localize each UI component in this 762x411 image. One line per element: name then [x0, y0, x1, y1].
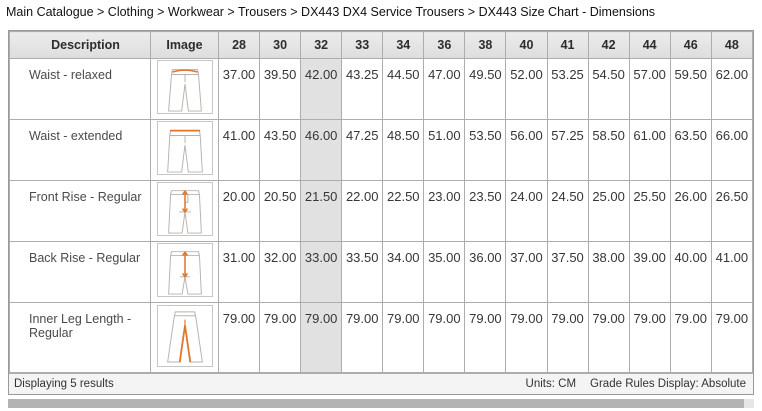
measurement-value: 66.00	[711, 120, 752, 181]
measurement-value: 36.00	[465, 242, 506, 303]
table-row: Waist - relaxed 37.0039.5042.0043.2544.5…	[10, 59, 753, 120]
measurement-value: 23.50	[465, 181, 506, 242]
row-image-cell	[151, 59, 219, 120]
measurement-value: 57.25	[547, 120, 588, 181]
row-description: Waist - extended	[10, 120, 151, 181]
measurement-value: 79.00	[383, 303, 424, 373]
measurement-value: 35.00	[424, 242, 465, 303]
row-image-cell	[151, 181, 219, 242]
measurement-value: 79.00	[424, 303, 465, 373]
size-column-header-32[interactable]: 32	[301, 32, 342, 59]
table-row: Front Rise - Regular 20.0020.5021.5022.0…	[10, 181, 753, 242]
measurement-value: 79.00	[219, 303, 260, 373]
measurement-value: 48.50	[383, 120, 424, 181]
size-column-header-33[interactable]: 33	[342, 32, 383, 59]
row-image-cell	[151, 120, 219, 181]
measurement-value: 46.00	[301, 120, 342, 181]
measurement-value: 42.00	[301, 59, 342, 120]
measurement-value: 21.50	[301, 181, 342, 242]
measurement-value: 32.00	[260, 242, 301, 303]
size-column-header-38[interactable]: 38	[465, 32, 506, 59]
measurement-value: 24.50	[547, 181, 588, 242]
measurement-value: 47.00	[424, 59, 465, 120]
table-footer: Displaying 5 results Units: CM Grade Rul…	[9, 373, 753, 394]
measurement-value: 79.00	[670, 303, 711, 373]
measurement-value: 53.50	[465, 120, 506, 181]
size-column-header-46[interactable]: 46	[670, 32, 711, 59]
size-column-header-41[interactable]: 41	[547, 32, 588, 59]
measurement-value: 20.00	[219, 181, 260, 242]
row-image-cell	[151, 242, 219, 303]
table-row: Waist - extended 41.0043.5046.0047.2548.…	[10, 120, 753, 181]
measurement-value: 26.50	[711, 181, 752, 242]
measurement-value: 44.50	[383, 59, 424, 120]
measurement-value: 79.00	[506, 303, 547, 373]
measurement-value: 37.00	[219, 59, 260, 120]
size-column-header-28[interactable]: 28	[219, 32, 260, 59]
trousers-waist-extended-diagram	[157, 121, 213, 175]
table-row: Back Rise - Regular 31.0032.0033.0033.50…	[10, 242, 753, 303]
measurement-value: 39.00	[629, 242, 670, 303]
measurement-value: 52.00	[506, 59, 547, 120]
measurement-value: 25.00	[588, 181, 629, 242]
measurement-value: 24.00	[506, 181, 547, 242]
trousers-waist-relaxed-diagram	[157, 60, 213, 114]
table-row: Inner Leg Length - Regular 79.0079.0079.…	[10, 303, 753, 373]
row-image-cell	[151, 303, 219, 373]
measurement-value: 39.50	[260, 59, 301, 120]
measurement-value: 22.50	[383, 181, 424, 242]
measurement-value: 34.00	[383, 242, 424, 303]
units-label: Units: CM	[526, 378, 576, 390]
grade-rules-display-label: Grade Rules Display: Absolute	[590, 378, 746, 390]
size-column-header-48[interactable]: 48	[711, 32, 752, 59]
measurement-value: 79.00	[260, 303, 301, 373]
row-description: Front Rise - Regular	[10, 181, 151, 242]
horizontal-scrollbar[interactable]	[8, 399, 754, 408]
measurement-value: 79.00	[547, 303, 588, 373]
measurement-value: 43.50	[260, 120, 301, 181]
measurement-value: 58.50	[588, 120, 629, 181]
size-column-header-40[interactable]: 40	[506, 32, 547, 59]
trousers-back-rise-diagram	[157, 243, 213, 297]
measurement-value: 49.50	[465, 59, 506, 120]
breadcrumb[interactable]: Main Catalogue > Clothing > Workwear > T…	[0, 0, 762, 19]
measurement-value: 37.00	[506, 242, 547, 303]
horizontal-scrollbar-thumb[interactable]	[8, 399, 744, 408]
measurement-value: 22.00	[342, 181, 383, 242]
size-chart-table: Description Image 2830323334363840414244…	[8, 30, 754, 395]
measurement-value: 20.50	[260, 181, 301, 242]
measurement-value: 40.00	[670, 242, 711, 303]
size-column-header-42[interactable]: 42	[588, 32, 629, 59]
size-column-header-34[interactable]: 34	[383, 32, 424, 59]
size-column-header-36[interactable]: 36	[424, 32, 465, 59]
measurement-value: 53.25	[547, 59, 588, 120]
measurement-value: 79.00	[629, 303, 670, 373]
measurement-value: 79.00	[711, 303, 752, 373]
measurement-value: 51.00	[424, 120, 465, 181]
row-description: Back Rise - Regular	[10, 242, 151, 303]
measurement-value: 26.00	[670, 181, 711, 242]
measurement-value: 61.00	[629, 120, 670, 181]
results-count-text: Displaying 5 results	[14, 378, 114, 390]
row-description: Waist - relaxed	[10, 59, 151, 120]
measurement-value: 79.00	[465, 303, 506, 373]
image-column-header: Image	[151, 32, 219, 59]
measurement-value: 31.00	[219, 242, 260, 303]
measurement-value: 38.00	[588, 242, 629, 303]
table-header-row: Description Image 2830323334363840414244…	[10, 32, 753, 59]
measurement-value: 33.00	[301, 242, 342, 303]
measurement-value: 79.00	[588, 303, 629, 373]
measurement-value: 79.00	[342, 303, 383, 373]
measurement-value: 79.00	[301, 303, 342, 373]
measurement-value: 63.50	[670, 120, 711, 181]
measurement-value: 23.00	[424, 181, 465, 242]
measurement-value: 56.00	[506, 120, 547, 181]
trousers-front-rise-diagram	[157, 182, 213, 236]
measurement-value: 43.25	[342, 59, 383, 120]
measurement-value: 25.50	[629, 181, 670, 242]
measurement-value: 57.00	[629, 59, 670, 120]
row-description: Inner Leg Length - Regular	[10, 303, 151, 373]
measurement-value: 59.50	[670, 59, 711, 120]
measurement-value: 54.50	[588, 59, 629, 120]
description-column-header: Description	[10, 32, 151, 59]
measurement-value: 62.00	[711, 59, 752, 120]
measurement-value: 41.00	[219, 120, 260, 181]
size-column-header-30[interactable]: 30	[260, 32, 301, 59]
size-column-header-44[interactable]: 44	[629, 32, 670, 59]
measurement-value: 33.50	[342, 242, 383, 303]
measurement-value: 47.25	[342, 120, 383, 181]
measurement-value: 37.50	[547, 242, 588, 303]
trousers-inner-leg-diagram	[157, 305, 213, 367]
measurement-value: 41.00	[711, 242, 752, 303]
